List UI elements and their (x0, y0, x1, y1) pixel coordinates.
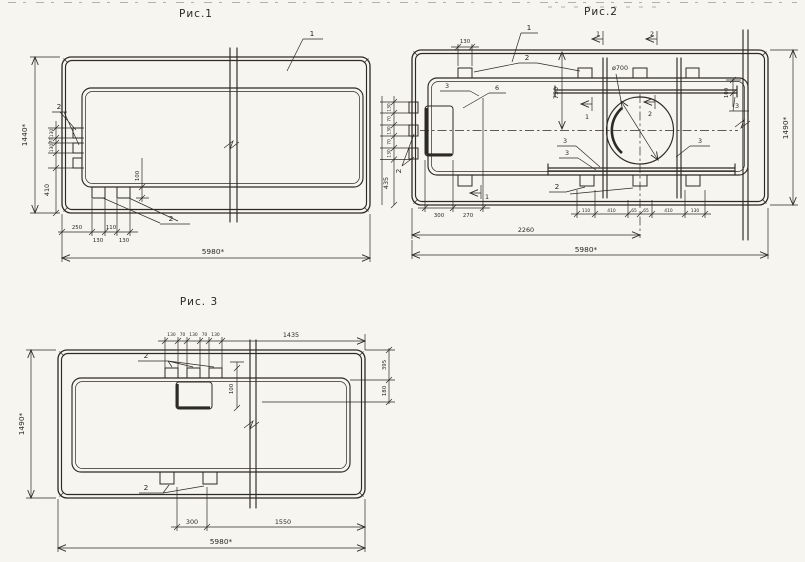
fig3-dim-1435: 1435 (283, 331, 299, 339)
fig2-top-tab (633, 68, 647, 78)
fig3-top-tab (187, 368, 200, 378)
fig1-break-rails (230, 48, 237, 222)
fig3-recess-outer (72, 378, 350, 472)
fig2-callout-1: 1 (527, 23, 532, 32)
fig3-chain-130: 130 (189, 332, 198, 338)
fig2-dim130-top (451, 44, 479, 66)
fig1-panel (62, 57, 370, 213)
blueprint-sheet: Рис.1 1 2 2 1440* 5980* 130 70 130 410 1… (0, 0, 805, 562)
fig2-top-tab (578, 68, 592, 78)
fig3-chain-70: 70 (202, 332, 208, 338)
fig2-dim-length: 5980* (575, 245, 598, 254)
fig2-mid-110: 110 (582, 208, 591, 214)
fig1-dim-250: 250 (72, 225, 83, 231)
fig3-bottom-tab (203, 472, 217, 484)
fig2-dim-435: 435 (382, 177, 390, 189)
fig2-section1-top: 1 (596, 30, 600, 38)
fig1-dim-100: 100 (135, 170, 141, 181)
fig3-dim-180: 180 (382, 385, 388, 396)
fig2-callout3-a (440, 91, 479, 96)
fig2-section1-inner-flag (581, 97, 592, 111)
fig3-bottom-tab (160, 472, 174, 484)
fig2-bottom-tab (686, 175, 700, 186)
fig2-recess-inner (432, 82, 745, 172)
fig2-section1-bottom-flag (470, 185, 481, 199)
fig3-dim-1550: 1550 (275, 518, 291, 526)
fig1-dim-130a: 130 (93, 238, 104, 244)
fig1-callout1-leader (287, 39, 323, 71)
fig3-tabs (160, 368, 222, 484)
fig3-dim-395: 395 (382, 360, 388, 370)
fig3: Рис. 3 2 2 130 70 130 70 130 1435 395 18… (17, 296, 395, 552)
fig3-panel (58, 350, 365, 498)
fig2-corner-chamfers (414, 52, 767, 204)
fig3-panel-outer (58, 350, 365, 498)
fig2-callout-3: 3 (565, 149, 569, 157)
fig3-dimensions (26, 334, 395, 552)
fig1-dim-length: 5980* (202, 247, 225, 256)
fig2-mid-65: 65 (643, 208, 649, 214)
fig3-dim-100: 100 (229, 383, 235, 394)
fig2-dim-height: 1490* (781, 116, 790, 139)
fig3-labels: Рис. 3 2 2 130 70 130 70 130 1435 395 18… (17, 296, 388, 546)
fig2-chain-70: 70 (387, 116, 393, 122)
scan-artifacts (8, 3, 797, 8)
fig2-panel-bevel (416, 54, 765, 202)
fig1-panel-outer (62, 57, 370, 213)
fig2-chain-70: 70 (387, 139, 393, 145)
fig2-opening-shadow (426, 108, 452, 155)
fig2-break-line (735, 30, 750, 240)
fig1-callout-1: 1 (310, 29, 315, 38)
fig2-bottom-tab (458, 175, 472, 186)
fig2-section2-inner: 2 (648, 110, 652, 118)
fig3-dim-length: 5980* (210, 537, 233, 546)
fig2-section-flags (470, 31, 657, 199)
fig2-section1-inner: 1 (585, 113, 589, 121)
fig1-break-line (224, 48, 239, 222)
fig3-dim-300: 300 (186, 518, 198, 526)
fig2-dim-130-top: 130 (460, 39, 471, 45)
fig1-recess-inner (86, 92, 360, 184)
fig2-top-tab (686, 68, 699, 78)
fig2-callout-6: 6 (495, 84, 499, 92)
fig1-labels: Рис.1 1 2 2 1440* 5980* 130 70 130 410 1… (20, 8, 315, 256)
fig2-opening (425, 106, 453, 156)
fig2-chain-130: 130 (387, 103, 393, 112)
fig3-break-zigzag (244, 421, 259, 429)
fig1-chain-70: 70 (49, 138, 55, 144)
fig1-dim-height: 1440* (20, 123, 29, 146)
fig1-chain-130: 130 (49, 129, 55, 138)
fig2-upper-plate (555, 86, 737, 97)
fig3-chain-130: 130 (167, 332, 176, 338)
fig3-chain-130: 130 (211, 332, 220, 338)
fig2-panel-outer (412, 50, 768, 205)
fig2-dim-100: 100 (724, 87, 730, 98)
fig1-callout2-bottom-leader (103, 198, 190, 224)
fig2-labels: Рис.2 1 2 2 2 3 3 3 3 3 6 1 2 1 2 1 130 … (382, 6, 790, 254)
fig3-callout2-bottom-leader (139, 485, 204, 493)
fig3-recess-inner (76, 382, 347, 469)
fig2-dim-300: 300 (434, 213, 445, 219)
fig3-title: Рис. 3 (180, 296, 218, 308)
fig2-dim-270: 270 (463, 213, 474, 219)
fig1-recess-outer (82, 88, 363, 187)
fig2-callout2-top-leader (474, 63, 580, 72)
fig2-title: Рис.2 (584, 6, 618, 18)
fig2-break-rails (743, 30, 748, 240)
fig2-section2-top: 2 (650, 30, 654, 38)
fig1-left-tab (73, 128, 82, 138)
fig2-callout-2-left: 2 (394, 169, 403, 174)
fig3-panel-bevel (62, 354, 362, 495)
fig1-left-tab (73, 158, 82, 168)
fig2-mid-130: 130 (691, 208, 700, 214)
fig1-left-tab (73, 143, 82, 153)
fig2-callout-3: 3 (698, 137, 702, 145)
fig3-break-rails (250, 340, 256, 508)
fig2-dim-hole: ø700 (612, 64, 628, 72)
fig1-dim-110: 110 (106, 225, 117, 231)
fig2-channel-rails (603, 58, 681, 198)
fig3-opening (176, 382, 212, 409)
fig2-callout-2-tabs: 2 (525, 53, 530, 62)
fig2-left-tab (409, 102, 418, 113)
fig2: Рис.2 1 2 2 2 3 3 3 3 3 6 1 2 1 2 1 130 … (380, 6, 798, 259)
fig2-dimensions (380, 33, 798, 259)
fig2-top-tab (458, 68, 472, 78)
fig1-dim-410: 410 (43, 184, 51, 196)
fig1-callout-2-left: 2 (57, 102, 62, 111)
fig2-mid-410: 410 (664, 208, 673, 214)
fig3-callout-2-bottom: 2 (144, 483, 149, 492)
fig1-corner-chamfers (64, 59, 369, 212)
fig2-mid-65: 65 (631, 208, 637, 214)
fig3-break-line (244, 340, 259, 508)
fig3-top-tab (165, 368, 178, 378)
fig1-bottom-tab (92, 187, 105, 198)
fig1-chain-130b: 130 (49, 144, 55, 153)
fig3-height-ext (26, 350, 56, 498)
fig3-top-tab (209, 368, 222, 378)
fig3-dim-height: 1490* (17, 412, 26, 435)
fig2-bottom-tab (580, 175, 594, 186)
fig1: Рис.1 1 2 2 1440* 5980* 130 70 130 410 1… (20, 8, 370, 262)
fig2-callout-3: 3 (735, 102, 739, 110)
fig2-dim-2260: 2260 (518, 226, 534, 234)
fig1-tabs (73, 128, 130, 198)
fig2-chain-130: 130 (387, 126, 393, 135)
fig2-mid-410: 410 (607, 208, 616, 214)
fig2-callout6-leader (463, 93, 506, 108)
fig3-callout2-top-leader (138, 361, 214, 367)
fig1-title: Рис.1 (179, 8, 213, 20)
fig1-bottom-tab (117, 187, 130, 198)
fig2-callout-3: 3 (563, 137, 567, 145)
fig2-section1-bottom: 1 (485, 193, 489, 201)
fig2-embeds (548, 58, 737, 198)
fig2-chain-130: 130 (387, 149, 393, 158)
fig2-panel (412, 50, 768, 205)
fig2-dim-750: 750 (552, 87, 560, 99)
fig1-callout-2-bottom: 2 (169, 214, 174, 223)
fig3-chain-70: 70 (180, 332, 186, 338)
fig2-callout-3: 3 (445, 82, 449, 90)
fig3-opening-shadow (177, 384, 210, 408)
fig3-top-ext (165, 334, 365, 368)
fig3-right-ext (262, 350, 395, 402)
fig3-corner-chamfers (60, 352, 364, 497)
fig2-lower-plate (548, 164, 735, 175)
fig1-dim-130b: 130 (119, 238, 130, 244)
fig2-callout-2-bottom: 2 (555, 182, 560, 191)
fig2-callout2-bottom-leader (549, 187, 633, 194)
technical-drawing: Рис.1 1 2 2 1440* 5980* 130 70 130 410 1… (0, 0, 805, 562)
fig2-callout3-c (557, 146, 600, 167)
fig3-callout-2-top: 2 (144, 351, 149, 360)
